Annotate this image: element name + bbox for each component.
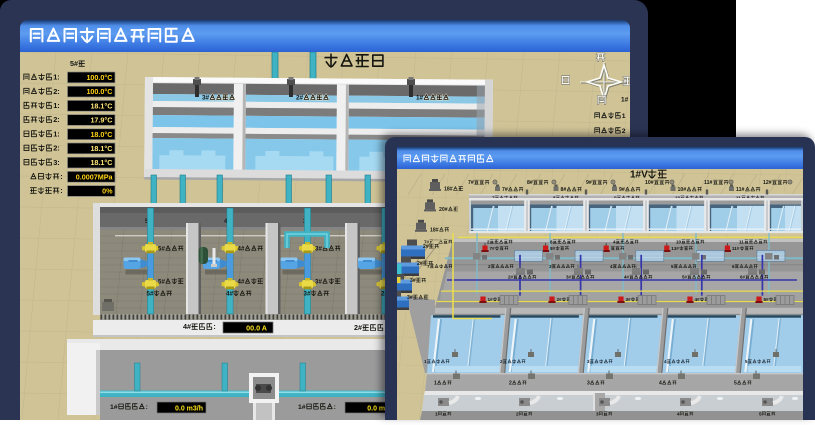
svg-text:1:: 1: [53, 129, 60, 138]
svg-text:4#: 4# [238, 245, 245, 252]
svg-text:2: 2 [488, 264, 491, 269]
svg-text:4: 4 [659, 380, 662, 386]
svg-text:4: 4 [610, 264, 613, 269]
svg-text:6#: 6# [740, 275, 746, 280]
svg-text:5: 5 [745, 359, 748, 364]
svg-text:1#V: 1#V [630, 170, 648, 181]
svg-text::: : [60, 186, 62, 195]
svg-text:10: 10 [676, 239, 682, 244]
svg-text:3#: 3# [315, 278, 322, 285]
svg-text:1#: 1# [416, 95, 424, 102]
svg-text:2#: 2# [557, 297, 563, 302]
svg-text:5: 5 [734, 380, 737, 386]
svg-text:4#: 4# [183, 322, 191, 331]
svg-text:18.1°C: 18.1°C [90, 101, 112, 110]
svg-text:2: 2 [500, 359, 503, 364]
svg-text:3: 3 [587, 380, 590, 386]
svg-text:3: 3 [596, 411, 599, 416]
svg-text:1: 1 [622, 113, 626, 120]
svg-text:2: 2 [509, 380, 512, 386]
svg-text:3#: 3# [410, 278, 416, 284]
svg-text::: : [334, 404, 336, 411]
svg-text:8#: 8# [561, 187, 567, 193]
svg-text:3#: 3# [202, 95, 210, 102]
svg-text:12#: 12# [763, 180, 772, 186]
svg-text:18#: 18# [430, 227, 439, 233]
svg-text:5#: 5# [682, 275, 688, 280]
svg-text:7#: 7# [468, 180, 474, 186]
svg-text:10#: 10# [645, 180, 654, 186]
svg-text:3:: 3: [53, 158, 60, 167]
svg-text:4#: 4# [695, 297, 701, 302]
svg-text:1#: 1# [488, 297, 494, 302]
svg-text:9#: 9# [619, 187, 625, 193]
svg-text:2#: 2# [354, 323, 362, 332]
svg-text:1: 1 [434, 380, 437, 386]
svg-text:11#: 11# [736, 187, 744, 193]
svg-text:00.0 A: 00.0 A [246, 324, 267, 333]
svg-text:3#: 3# [304, 290, 311, 297]
svg-text:3#: 3# [626, 297, 632, 302]
svg-text:3: 3 [549, 264, 552, 269]
svg-text:5: 5 [671, 264, 674, 269]
svg-text:2: 2 [622, 128, 626, 135]
svg-text:5#: 5# [764, 297, 770, 302]
svg-text:17.9°C: 17.9°C [90, 116, 112, 125]
svg-text:7#: 7# [502, 187, 508, 193]
svg-text:18.1°C: 18.1°C [90, 158, 112, 167]
svg-text:4: 4 [664, 359, 667, 364]
svg-text:10#: 10# [678, 187, 687, 193]
svg-text:2:: 2: [53, 87, 60, 96]
svg-text:2#: 2# [296, 95, 304, 102]
svg-text:0.0 m3/h: 0.0 m3/h [175, 406, 203, 413]
svg-text:1: 1 [424, 359, 427, 364]
svg-text::: : [213, 322, 215, 331]
svg-text:20#: 20# [439, 207, 448, 213]
svg-text:5#: 5# [70, 59, 78, 68]
svg-text:8#: 8# [550, 246, 556, 251]
svg-text:5#: 5# [147, 290, 154, 297]
svg-text::: : [146, 404, 148, 411]
svg-text:2: 2 [487, 239, 490, 244]
svg-text:5#: 5# [158, 278, 165, 285]
svg-text:100.0°C: 100.0°C [86, 87, 112, 96]
svg-text::: : [60, 172, 62, 181]
svg-text:2:: 2: [53, 144, 60, 153]
svg-text:2: 2 [516, 411, 519, 416]
svg-text:4#: 4# [226, 290, 233, 297]
svg-text:1: 1 [435, 411, 438, 416]
svg-text:0%: 0% [102, 187, 113, 196]
svg-text:5: 5 [759, 411, 762, 416]
svg-text:0.0007MPa: 0.0007MPa [76, 172, 114, 181]
svg-text:7#: 7# [490, 246, 496, 251]
svg-text:1#: 1# [110, 404, 118, 411]
svg-text:11: 11 [739, 239, 744, 244]
svg-text:18.0°C: 18.0°C [90, 130, 112, 139]
svg-text:1:: 1: [53, 73, 60, 82]
svg-text:4#: 4# [238, 278, 245, 285]
svg-text:18.1°C: 18.1°C [90, 144, 112, 153]
svg-text:8#: 8# [527, 180, 533, 186]
svg-text:2#: 2# [423, 244, 429, 250]
svg-text:3#: 3# [315, 245, 322, 252]
svg-text:4: 4 [677, 411, 680, 416]
svg-text:18#: 18# [444, 187, 453, 193]
svg-text:2#: 2# [508, 275, 514, 280]
svg-text:3#: 3# [566, 275, 572, 280]
svg-text:13#: 13# [671, 246, 679, 251]
svg-text:3#: 3# [407, 295, 413, 301]
svg-text:8: 8 [550, 239, 553, 244]
svg-text:11#: 11# [704, 180, 712, 186]
svg-text:100.0°C: 100.0°C [86, 73, 112, 82]
svg-text:11#: 11# [732, 246, 740, 251]
svg-text:2:: 2: [53, 115, 60, 124]
svg-text:2#: 2# [417, 261, 423, 267]
svg-text:4: 4 [613, 239, 616, 244]
svg-text:5#: 5# [158, 245, 165, 252]
svg-text:6: 6 [732, 264, 735, 269]
svg-text:1#: 1# [298, 404, 306, 411]
svg-text:4#: 4# [624, 275, 630, 280]
svg-text:9#: 9# [586, 180, 592, 186]
svg-text:1:: 1: [53, 101, 60, 110]
svg-text:1#: 1# [621, 97, 629, 104]
svg-text:3: 3 [587, 359, 590, 364]
